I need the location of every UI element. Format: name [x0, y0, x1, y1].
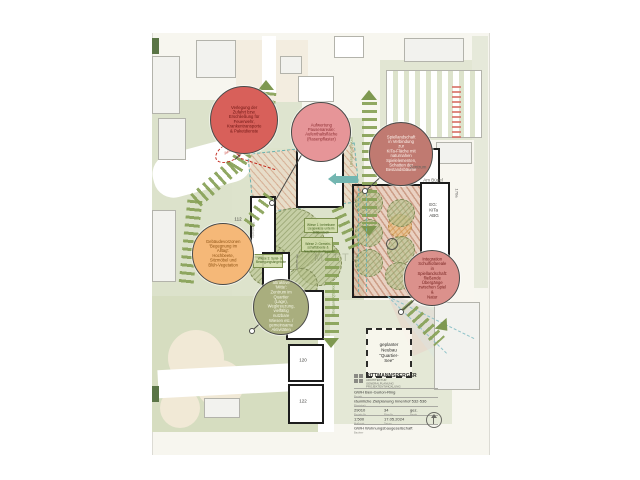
lawn-note: Wiese 1: betretbare Liegewiese unterm Bl… — [304, 218, 338, 233]
building — [158, 118, 186, 160]
building — [434, 302, 480, 390]
building — [280, 56, 302, 74]
promenade-arrow-up — [361, 90, 377, 100]
lawn-note: Wiese 3: Spiel- & Bewegungsangebote — [253, 254, 283, 268]
lawn-note-text: Wiese 3: Spiel- & Bewegungsangebote — [256, 257, 284, 264]
building-number: 120 — [299, 358, 307, 363]
lawn-note-text: Wiese 1: betretbare Liegewiese unterm Bl… — [307, 223, 335, 234]
annotation-balloon-access: Verlegung der Zufahrt bzw. Erschließung … — [210, 86, 278, 154]
balloon-text: Gebäudevorzonen 'Begegnung im Alltag': H… — [206, 240, 241, 268]
teal-guideline — [366, 188, 367, 292]
planned-building-label: geplanter Neubau "Quartier-See" — [379, 342, 400, 364]
annotation-balloon-vorzonen: Gebäudevorzonen 'Begegnung im Alltag': H… — [192, 223, 254, 285]
building-number-vertical: 170a — [455, 188, 460, 197]
balloon-text: attraktive 'Mitte': Zentrum im Quartier … — [268, 281, 295, 333]
building-buergerhaus — [436, 142, 472, 164]
teal-guideline — [358, 188, 359, 292]
passage-hatch — [452, 86, 461, 138]
north-arrow-tip — [431, 414, 437, 418]
annotation-balloon-spiellandschaft: Spiellandschaft in Verbindung zur KiTa-F… — [369, 122, 433, 186]
label-zentrum: Zentrum — [410, 165, 427, 170]
lawn-note-text: Wiese 2: Gemein- schaftsbeete & Nachbars… — [304, 242, 332, 253]
building — [152, 210, 176, 282]
drawn-by: gez. — [410, 408, 418, 413]
balloon-text: Aufwertung Pausenareale: Aufenthaltsfläc… — [305, 123, 337, 142]
crossing-arrow-head — [328, 173, 336, 185]
building-number: 112 — [234, 217, 241, 222]
building-120 — [288, 344, 324, 382]
label-uebergang-ost: Übergang QS-Ost — [349, 137, 353, 167]
annotation-balloon-pausenareal: Aufwertung Pausenareale: Aufenthaltsfläc… — [291, 102, 351, 162]
building-number: 122 — [299, 399, 307, 404]
divider — [354, 406, 438, 407]
client-name: GWH Wohnungsbaugesellschaft — [354, 426, 412, 431]
balloon-text: Integration Schulhofareale in Spiellands… — [417, 257, 447, 299]
building-50b — [334, 36, 364, 58]
leader-dot — [398, 309, 404, 315]
building-122 — [288, 384, 324, 424]
annotation-balloon-mitte: attraktive 'Mitte': Zentrum im Quartier … — [253, 279, 309, 335]
balloon-text: Verlegung der Zufahrt bzw. Erschließung … — [227, 106, 262, 134]
label-uebergang-sued: Übergang QS-Süd — [331, 284, 335, 315]
divider — [354, 424, 438, 425]
divider — [354, 397, 438, 398]
promenade-arrow-up — [258, 80, 274, 90]
building-508 — [298, 76, 334, 102]
plan-title: räumliche Zielplanung Innenhof 532-536 — [354, 399, 427, 404]
hedge — [152, 38, 159, 54]
divider — [354, 415, 438, 416]
promenade-arrow-down — [361, 226, 377, 236]
leader-dot — [269, 200, 275, 206]
label-raumkante: Raumkante — [295, 254, 299, 270]
building — [152, 56, 180, 114]
crossing-arrow — [336, 176, 358, 183]
promenade-arrow-down — [323, 338, 339, 348]
hedge — [152, 386, 159, 402]
north-arrow-stem — [433, 417, 434, 424]
label-am-buegel: Am Bügel — [423, 178, 443, 183]
lawn-note: Wiese 2: Gemein- schaftsbeete & Nachbars… — [301, 237, 333, 252]
firm-logo-icon — [354, 374, 363, 383]
label-kita-floors: EG: KiTa ABG — [429, 202, 439, 218]
annotation-balloon-schulhof: Integration Schulhofareale in Spiellands… — [404, 250, 460, 306]
planned-building-outline: geplanter Neubau "Quartier-See" — [366, 328, 412, 378]
building — [404, 38, 464, 62]
project-number: 29010 — [354, 408, 365, 413]
north-arrow-icon — [426, 412, 442, 428]
plan-viewer-canvas: Zufahrt geplanter Neubau "Quartier-See" … — [0, 0, 640, 480]
courtyard-tree — [387, 199, 415, 227]
divider — [354, 388, 438, 389]
scale-value: 1:500 — [354, 417, 364, 422]
leader-dot — [362, 188, 368, 194]
leader-dot — [249, 328, 255, 334]
building-10b — [204, 398, 240, 418]
client-label: Bauherr — [354, 431, 363, 434]
label-raumkante: Raumkante — [251, 222, 255, 238]
project-name: GWH Ben-Gurion-Ring — [354, 390, 395, 395]
building-584 — [196, 40, 236, 78]
date-value: 17.05.2024 — [384, 417, 404, 422]
courtyard-spiral — [386, 238, 398, 250]
plan-number: 34 — [384, 408, 389, 413]
